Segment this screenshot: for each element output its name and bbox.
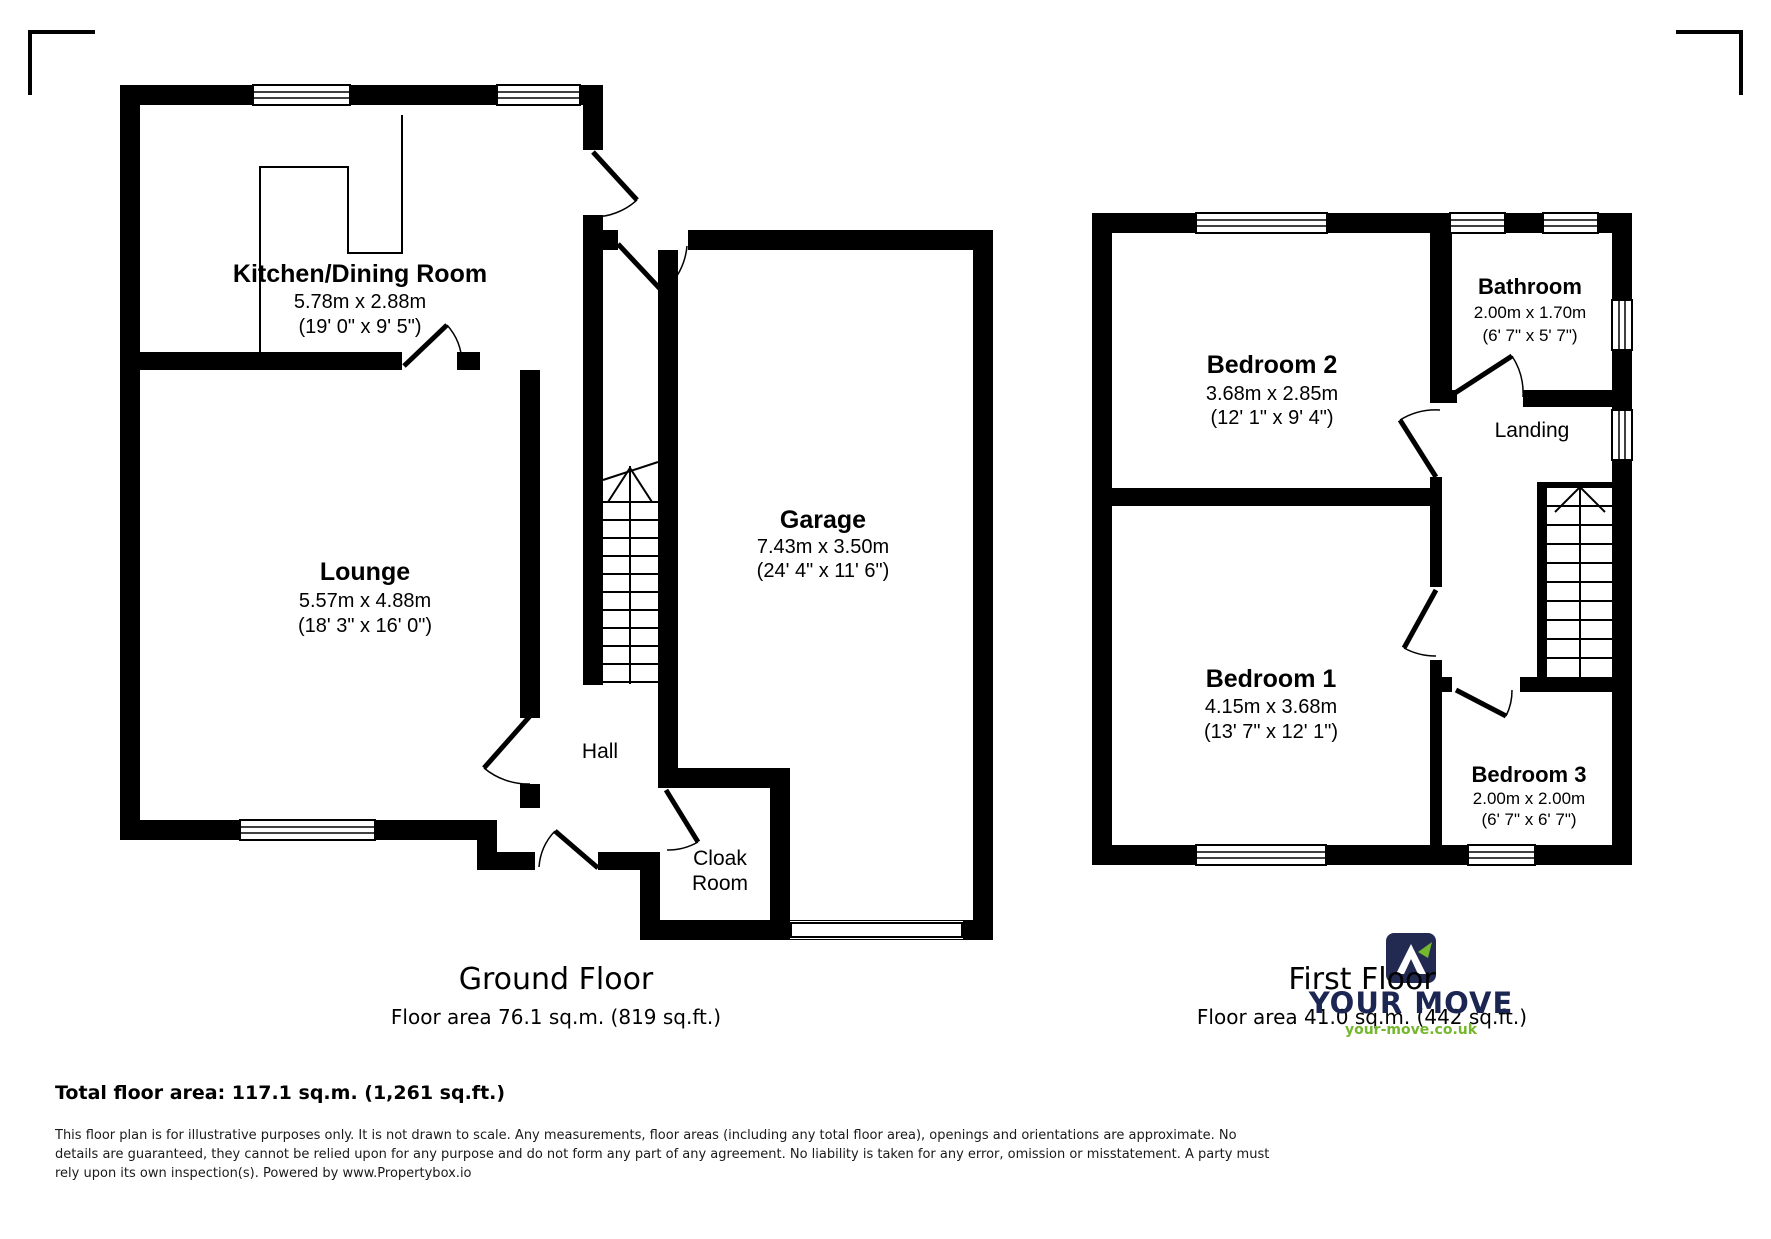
bedroom1-label: Bedroom 1 (1206, 665, 1337, 693)
lounge-window (240, 820, 375, 840)
ground-floor-stairs (603, 462, 658, 684)
bedroom1-window (1196, 845, 1326, 865)
crop-mark-top-left-icon (30, 32, 95, 95)
bathroom-side-window (1612, 300, 1632, 350)
lounge-label: Lounge (320, 558, 410, 586)
garage-label: Garage (780, 506, 866, 534)
bedroom3-dim-imperial: (6' 7" x 6' 7") (1481, 810, 1576, 829)
floorplan-canvas: Kitchen/Dining Room 5.78m x 2.88m (19' 0… (0, 0, 1771, 1239)
bathroom-window-left (1450, 213, 1505, 233)
bedroom3-dim-metric: 2.00m x 2.00m (1473, 789, 1585, 808)
bedroom2-dim-metric: 3.68m x 2.85m (1206, 383, 1338, 405)
bathroom-dim-metric: 2.00m x 1.70m (1474, 303, 1586, 322)
bedroom2-dim-imperial: (12' 1" x 9' 4") (1211, 407, 1334, 429)
kitchen-dim-metric: 5.78m x 2.88m (294, 291, 426, 313)
garage-door-opening (790, 921, 963, 939)
bathroom-label: Bathroom (1478, 274, 1582, 299)
bedroom1-dim-metric: 4.15m x 3.68m (1205, 696, 1337, 718)
cloak-room-door (666, 790, 698, 850)
bedroom2-label: Bedroom 2 (1207, 351, 1338, 379)
bathroom-dim-imperial: (6' 7" x 5' 7") (1482, 326, 1577, 345)
floorplan-page: Kitchen/Dining Room 5.78m x 2.88m (19' 0… (0, 0, 1771, 1239)
ground-floor-caption: Ground Floor Floor area 76.1 sq.m. (819 … (256, 962, 856, 1029)
ground-floor-title: Ground Floor (256, 962, 856, 997)
first-floor-stairs (1547, 487, 1612, 677)
crop-mark-top-right-icon (1676, 32, 1741, 95)
bedroom3-label: Bedroom 3 (1472, 762, 1587, 787)
landing-side-window (1612, 410, 1632, 460)
cloak-room-label-line1: Cloak (693, 847, 747, 870)
garage-dim-imperial: (24' 4" x 11' 6") (757, 560, 890, 582)
bathroom-door (1455, 356, 1523, 397)
total-floor-area: Total floor area: 117.1 sq.m. (1,261 sq.… (55, 1082, 505, 1104)
front-entry-door (593, 152, 637, 217)
kitchen-window-left (253, 85, 350, 105)
your-move-website: your-move.co.uk (1271, 1022, 1551, 1038)
bedroom2-window (1196, 213, 1327, 233)
lounge-dim-metric: 5.57m x 4.88m (299, 590, 431, 612)
kitchen-window-right (497, 85, 580, 105)
ground-floor-plan: Kitchen/Dining Room 5.78m x 2.88m (19' 0… (120, 85, 993, 940)
bedroom1-dim-imperial: (13' 7" x 12' 1") (1204, 721, 1338, 743)
bedroom1-door (1404, 590, 1436, 656)
kitchen-label: Kitchen/Dining Room (233, 260, 487, 288)
kitchen-dim-imperial: (19' 0" x 9' 5") (299, 316, 422, 338)
your-move-logo: YOUR MOVE your-move.co.uk (1271, 984, 1551, 1038)
garage-dim-metric: 7.43m x 3.50m (757, 536, 889, 558)
hall-label: Hall (582, 740, 618, 763)
landing-label: Landing (1495, 419, 1570, 442)
ground-floor-area: Floor area 76.1 sq.m. (819 sq.ft.) (256, 1005, 856, 1029)
disclaimer-text: This floor plan is for illustrative purp… (55, 1126, 1283, 1183)
bedroom2-door (1400, 410, 1440, 477)
first-floor-plan: Bedroom 2 3.68m x 2.85m (12' 1" x 9' 4")… (1092, 213, 1632, 865)
bathroom-window-right (1543, 213, 1598, 233)
side-entry-door (539, 831, 598, 868)
lounge-dim-imperial: (18' 3" x 16' 0") (298, 615, 432, 637)
your-move-brand-name: YOUR MOVE (1271, 986, 1551, 1020)
cloak-room-label-line2: Room (692, 872, 748, 895)
bedroom3-door (1456, 690, 1512, 716)
lounge-hall-door (484, 716, 530, 784)
bedroom3-window (1468, 845, 1535, 865)
